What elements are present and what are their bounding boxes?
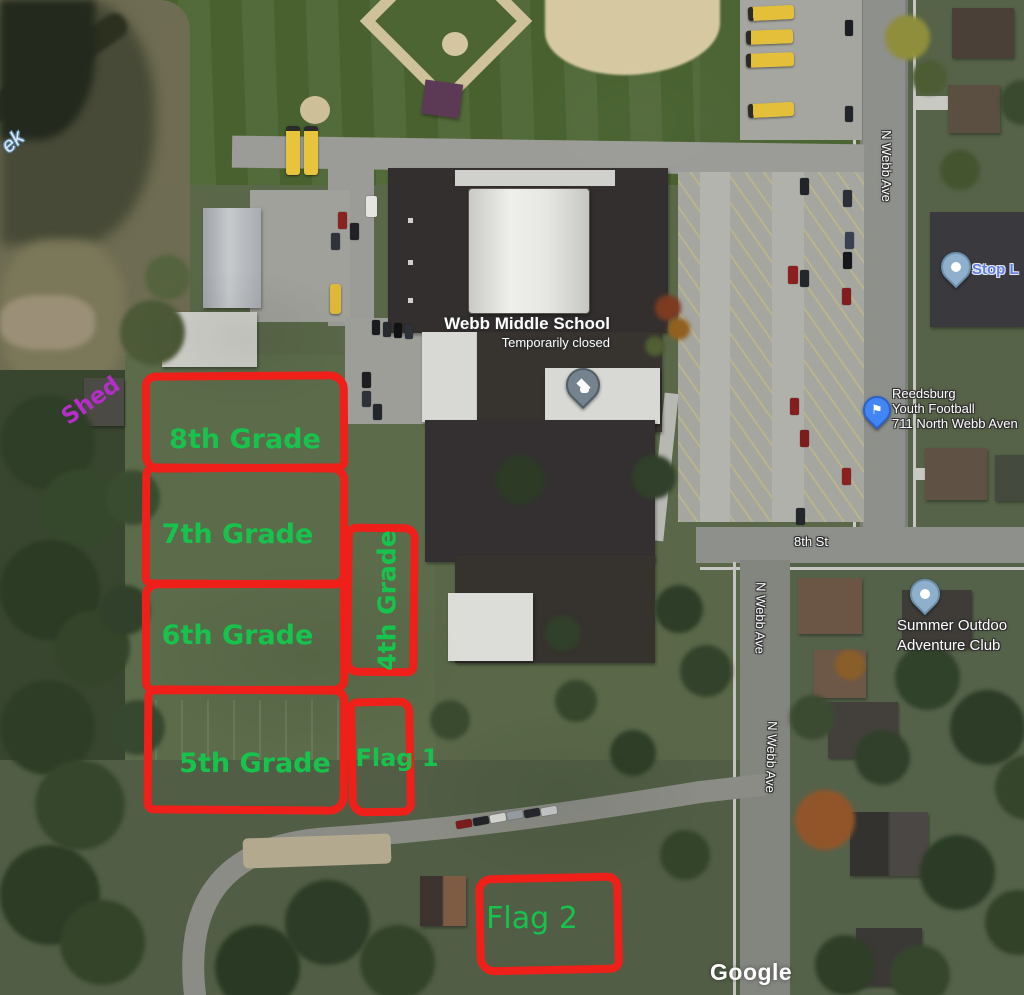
car: [338, 212, 347, 229]
road-label-n-webb-bottom: N Webb Ave: [759, 707, 780, 808]
tree: [145, 255, 190, 300]
zone-box-8th-grade: [142, 371, 349, 472]
car: [362, 372, 371, 388]
adventure-pin[interactable]: [908, 577, 938, 615]
car: [845, 232, 854, 249]
school-south-white: [448, 593, 533, 661]
zone-label-flag-1: Flag 1: [347, 744, 447, 772]
tree: [660, 830, 710, 880]
tree: [545, 615, 581, 651]
adventure-label[interactable]: Summer Outdoo Adventure Club: [897, 616, 1007, 656]
car: [843, 252, 852, 269]
bus-lot-topright: [740, 0, 862, 140]
east-lot-lane: [700, 172, 730, 522]
roof-vent: [408, 298, 413, 303]
house: [948, 85, 1000, 133]
tree: [360, 925, 435, 995]
tree: [120, 300, 185, 365]
tree: [950, 690, 1024, 765]
pitchers-mound: [442, 32, 468, 56]
car: [383, 322, 391, 337]
stop-pin[interactable]: [939, 250, 969, 288]
school-bus: [286, 126, 300, 175]
google-watermark: Google: [710, 959, 792, 986]
road-label-8th-st: 8th St: [794, 534, 828, 549]
road-label-n-webb-mid: N Webb Ave: [749, 568, 769, 668]
house: [925, 448, 987, 500]
football-label[interactable]: Reedsburg Youth Football 711 North Webb …: [892, 386, 1018, 431]
stop-label[interactable]: Stop L: [972, 261, 1019, 278]
tree: [285, 880, 370, 965]
car: [845, 20, 853, 36]
car: [373, 404, 382, 420]
tree: [430, 700, 470, 740]
tree: [940, 150, 980, 190]
house: [850, 812, 928, 876]
car: [790, 398, 799, 415]
school-north-white-strip: [455, 170, 615, 186]
gym-roof: [468, 188, 590, 314]
car: [843, 190, 852, 207]
car: [845, 106, 853, 122]
car: [842, 468, 851, 485]
silver-barn: [203, 208, 261, 308]
football-pin[interactable]: ⚑: [861, 394, 889, 430]
autumn-tree: [795, 790, 855, 850]
base-circle: [300, 96, 330, 124]
school-pin[interactable]: [564, 366, 598, 408]
house: [952, 8, 1014, 58]
school-bus: [746, 52, 794, 68]
school-bus: [748, 5, 795, 21]
school-bus: [746, 29, 793, 45]
roof-vent: [408, 260, 413, 265]
car: [800, 270, 809, 287]
school-white-wing-right: [545, 368, 660, 424]
zone-label-5th-grade: 5th Grade: [155, 748, 355, 779]
school-label-block[interactable]: Webb Middle School Temporarily closed: [420, 314, 610, 350]
autumn-tree: [835, 650, 865, 680]
school-bus: [304, 126, 318, 175]
car: [405, 324, 413, 339]
car: [350, 223, 359, 240]
tree: [912, 60, 947, 95]
school-status-label: Temporarily closed: [420, 335, 610, 350]
graduation-cap-icon: [568, 370, 598, 400]
tree: [610, 730, 656, 776]
autumn-tree: [885, 15, 930, 60]
zone-label-8th-grade: 8th Grade: [150, 424, 340, 455]
dot-icon: [951, 262, 961, 272]
tree: [35, 760, 125, 850]
zone-label-7th-grade: 7th Grade: [140, 519, 335, 550]
tree: [855, 730, 910, 785]
map-canvas[interactable]: Webb Middle School Temporarily closed St…: [0, 0, 1024, 995]
car: [372, 320, 380, 335]
tree: [555, 680, 597, 722]
tree: [815, 935, 875, 995]
school-name-label[interactable]: Webb Middle School: [420, 314, 610, 334]
zone-label-6th-grade: 6th Grade: [140, 620, 335, 651]
zone-label-flag-2: Flag 2: [472, 901, 592, 936]
car: [796, 508, 805, 525]
zone-label-4th-grade: 4th Grade: [373, 521, 402, 681]
car: [800, 178, 809, 195]
tree: [495, 455, 545, 505]
tree: [632, 455, 676, 499]
car: [331, 233, 340, 250]
house: [798, 578, 862, 634]
roof-vent: [408, 218, 413, 223]
car: [788, 266, 798, 284]
flag-icon: ⚑: [865, 398, 889, 422]
n-webb-ave-road: [860, 0, 908, 540]
dot-icon: [920, 589, 930, 599]
autumn-tree: [668, 318, 690, 340]
bottom-shed: [420, 876, 466, 926]
mini-bus: [330, 284, 341, 314]
car: [800, 430, 809, 447]
van: [366, 196, 377, 217]
school-bus: [748, 102, 795, 118]
car: [394, 323, 402, 338]
car: [842, 288, 851, 305]
house: [995, 455, 1024, 501]
dirt-patch: [0, 295, 95, 350]
eighth-st-road: [696, 527, 1024, 563]
tree: [60, 900, 145, 985]
road-label-n-webb-top: N Webb Ave: [876, 116, 894, 216]
gravel-pad: [243, 833, 392, 868]
dugout-purple-roof: [421, 80, 463, 119]
tree: [645, 336, 665, 356]
car: [362, 391, 371, 407]
tree: [790, 695, 835, 740]
tree: [920, 835, 995, 910]
tree: [655, 585, 703, 633]
east-lot-lane2: [772, 172, 804, 522]
tree: [680, 645, 732, 697]
